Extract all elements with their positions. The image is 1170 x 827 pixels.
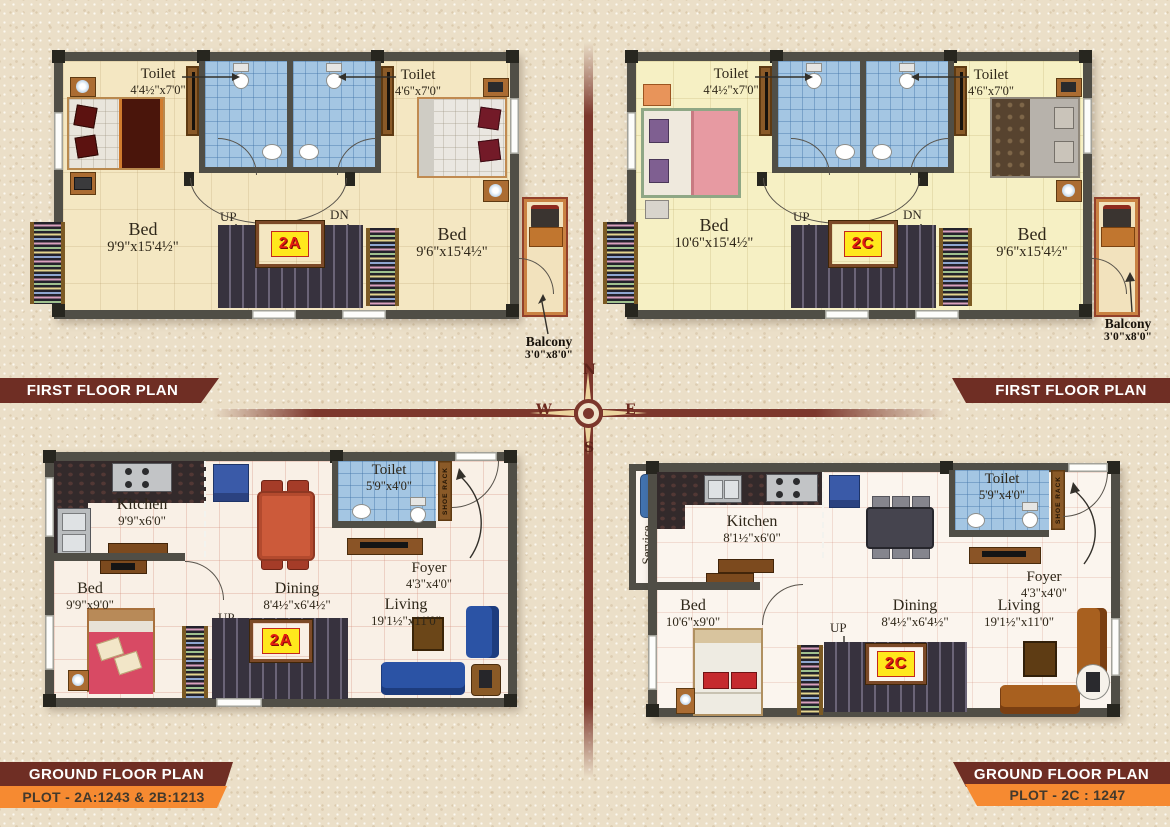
unit-badge: 2C: [877, 651, 915, 677]
pillar: [52, 304, 65, 317]
room-label-kitchen: Kitchen9'9"x6'0": [96, 496, 188, 528]
compass-center-dot: [583, 408, 594, 419]
balcony-pointer-arrow: [534, 294, 556, 336]
double-bed: [87, 608, 155, 692]
dining-table: [866, 507, 934, 549]
kitchen-open-boundary: [204, 461, 206, 557]
pillar: [646, 704, 659, 717]
pillar: [1107, 704, 1120, 717]
nightstand: [70, 172, 96, 195]
compass-label-south: S: [584, 440, 594, 456]
pillar: [625, 304, 638, 317]
room-label-bed: Bed9'9"x9'0": [58, 580, 122, 612]
room-label-bed-right: Bed9'6"x15'4½": [402, 224, 502, 260]
wardrobe: [366, 228, 399, 306]
toilet-wc-icon: [1022, 502, 1038, 528]
stair-landing: 2C: [866, 644, 926, 684]
nightstand: [643, 84, 671, 106]
pillar: [504, 450, 517, 463]
pillar: [506, 304, 519, 317]
pillar: [504, 694, 517, 707]
balcony-pointer-arrow: [1120, 272, 1142, 314]
room-label-foyer: Foyer4'3"x4'0": [1006, 569, 1082, 600]
window: [915, 310, 959, 319]
room-label-bed-left: Bed10'6"x15'4½": [662, 215, 766, 251]
window: [45, 615, 54, 670]
down-label: DN: [330, 207, 349, 223]
window: [1083, 98, 1092, 154]
room-label-dining: Dining8'4½"x6'4½": [871, 597, 959, 629]
nightstand: [483, 180, 509, 202]
wardrobe: [797, 645, 823, 715]
wardrobe: [939, 228, 972, 306]
toilet-pointer-arrow: [336, 70, 396, 84]
window: [216, 698, 262, 707]
room-label-balcony: Balcony3'0"x8'0": [514, 334, 584, 362]
room-label-foyer: Foyer4'3"x4'0": [391, 560, 467, 591]
compass-label-north: N: [583, 362, 596, 378]
pillar: [625, 50, 638, 63]
entry-door-gap: [1068, 463, 1108, 472]
unit-badge: 2A: [262, 628, 300, 654]
toilet-pointer-arrow: [909, 70, 969, 84]
fridge: [213, 464, 249, 502]
window: [342, 310, 386, 319]
tv-unit: [347, 538, 423, 555]
toilet-wc-icon: [410, 497, 426, 523]
window: [648, 635, 657, 690]
stair-landing: 2A: [250, 620, 312, 662]
window: [1111, 618, 1120, 676]
coffee-table: [1023, 641, 1057, 677]
double-bed: [990, 97, 1080, 178]
wardrobe: [30, 222, 65, 304]
nightstand: [70, 77, 96, 97]
double-bed: [67, 97, 165, 170]
window: [510, 98, 519, 154]
foyer-curved-arrow: [1064, 482, 1108, 566]
bedside-table: [676, 688, 695, 714]
stove-icon: [766, 474, 818, 502]
wall: [955, 530, 1049, 537]
compass-label-east: E: [625, 402, 636, 418]
balcony-desk: [1101, 227, 1135, 247]
stove-icon: [112, 463, 172, 492]
room-label-dining: Dining8'4½"x6'4½": [253, 580, 341, 612]
kitchen-sink-icon: [704, 475, 742, 503]
wall: [332, 461, 338, 528]
wall: [860, 61, 866, 167]
room-label-bed: Bed10'6"x9'0": [656, 597, 730, 629]
window: [54, 112, 63, 170]
room-label-toilet: Toilet5'9"x4'0": [352, 462, 426, 493]
room-label-living: Living19'1½"x11'0": [361, 596, 451, 628]
entry-door-gap: [455, 452, 497, 461]
kitchen-sink-icon: [57, 508, 91, 556]
banner-ground-floor-right: GROUND FLOOR PLAN: [953, 762, 1170, 787]
compass-label-west: W: [536, 402, 552, 418]
nightstand: [68, 670, 89, 691]
nightstand: [1056, 180, 1082, 202]
double-bed: [641, 108, 741, 198]
fridge: [829, 475, 860, 508]
banner-first-floor-left: FIRST FLOOR PLAN: [0, 378, 219, 403]
washbasin-icon: [967, 513, 985, 528]
wall: [949, 470, 955, 537]
kitchen-counter: [657, 505, 685, 529]
wall: [287, 61, 293, 167]
armchair: [466, 606, 499, 658]
stair-landing: 2A: [256, 221, 324, 267]
pillar: [1079, 304, 1092, 317]
washbasin-icon: [299, 144, 319, 160]
pillar: [506, 50, 519, 63]
wardrobe: [182, 626, 208, 698]
dresser: [100, 560, 147, 574]
room-label-living: Living19'1½"x11'0": [974, 597, 1064, 629]
tv-unit: [969, 547, 1041, 564]
banner-first-floor-right: FIRST FLOOR PLAN: [952, 378, 1170, 403]
wall: [648, 582, 760, 590]
room-label-kitchen: Kitchen8'1½"x6'0": [702, 513, 802, 545]
window: [45, 477, 54, 537]
toilet-pointer-arrow: [182, 70, 242, 84]
banner-plot-left: PLOT - 2A:1243 & 2B:1213: [0, 786, 227, 808]
banner-plot-right: PLOT - 2C : 1247: [965, 784, 1170, 806]
double-bed: [693, 628, 763, 716]
wardrobe: [603, 222, 638, 304]
washbasin-icon: [262, 144, 282, 160]
banner-ground-floor-left: GROUND FLOOR PLAN: [0, 762, 233, 787]
sofa: [1000, 685, 1080, 714]
nightstand: [1056, 78, 1082, 97]
washbasin-icon: [352, 504, 371, 519]
room-label-bed-right: Bed9'6"x15'4½": [982, 224, 1082, 260]
pillar: [43, 694, 56, 707]
double-bed: [417, 97, 507, 178]
unit-badge: 2A: [271, 231, 309, 257]
balcony-desk: [529, 227, 563, 247]
down-label: DN: [903, 207, 922, 223]
balcony-chair: [1103, 205, 1131, 229]
washbasin-icon: [835, 144, 855, 160]
sofa: [381, 662, 465, 695]
nightstand: [483, 78, 509, 97]
washbasin-icon: [872, 144, 892, 160]
pillar: [1079, 50, 1092, 63]
dining-table: [257, 491, 315, 561]
kitchen-cabinet: [718, 559, 774, 573]
window: [627, 112, 636, 170]
side-table: [471, 664, 501, 696]
toilet-pointer-arrow: [755, 70, 815, 84]
floor-plan-sheet: N S W E FIRST FLOOR PLAN FIRST FLOOR PLA…: [0, 0, 1170, 827]
room-label-toilet: Toilet5'9"x4'0": [965, 471, 1039, 502]
balcony-chair: [531, 205, 559, 229]
pillar: [52, 50, 65, 63]
kitchen-open-boundary: [822, 472, 824, 558]
telephone-table: [1076, 664, 1110, 700]
foyer-curved-arrow: [450, 468, 494, 560]
window: [252, 310, 296, 319]
window: [825, 310, 869, 319]
unit-badge: 2C: [844, 231, 882, 257]
pillar: [1107, 461, 1120, 474]
room-label-balcony: Balcony3'0"x8'0": [1092, 316, 1164, 344]
room-label-bed-left: Bed9'9"x15'4½": [93, 219, 193, 255]
stair-landing: 2C: [829, 221, 897, 267]
